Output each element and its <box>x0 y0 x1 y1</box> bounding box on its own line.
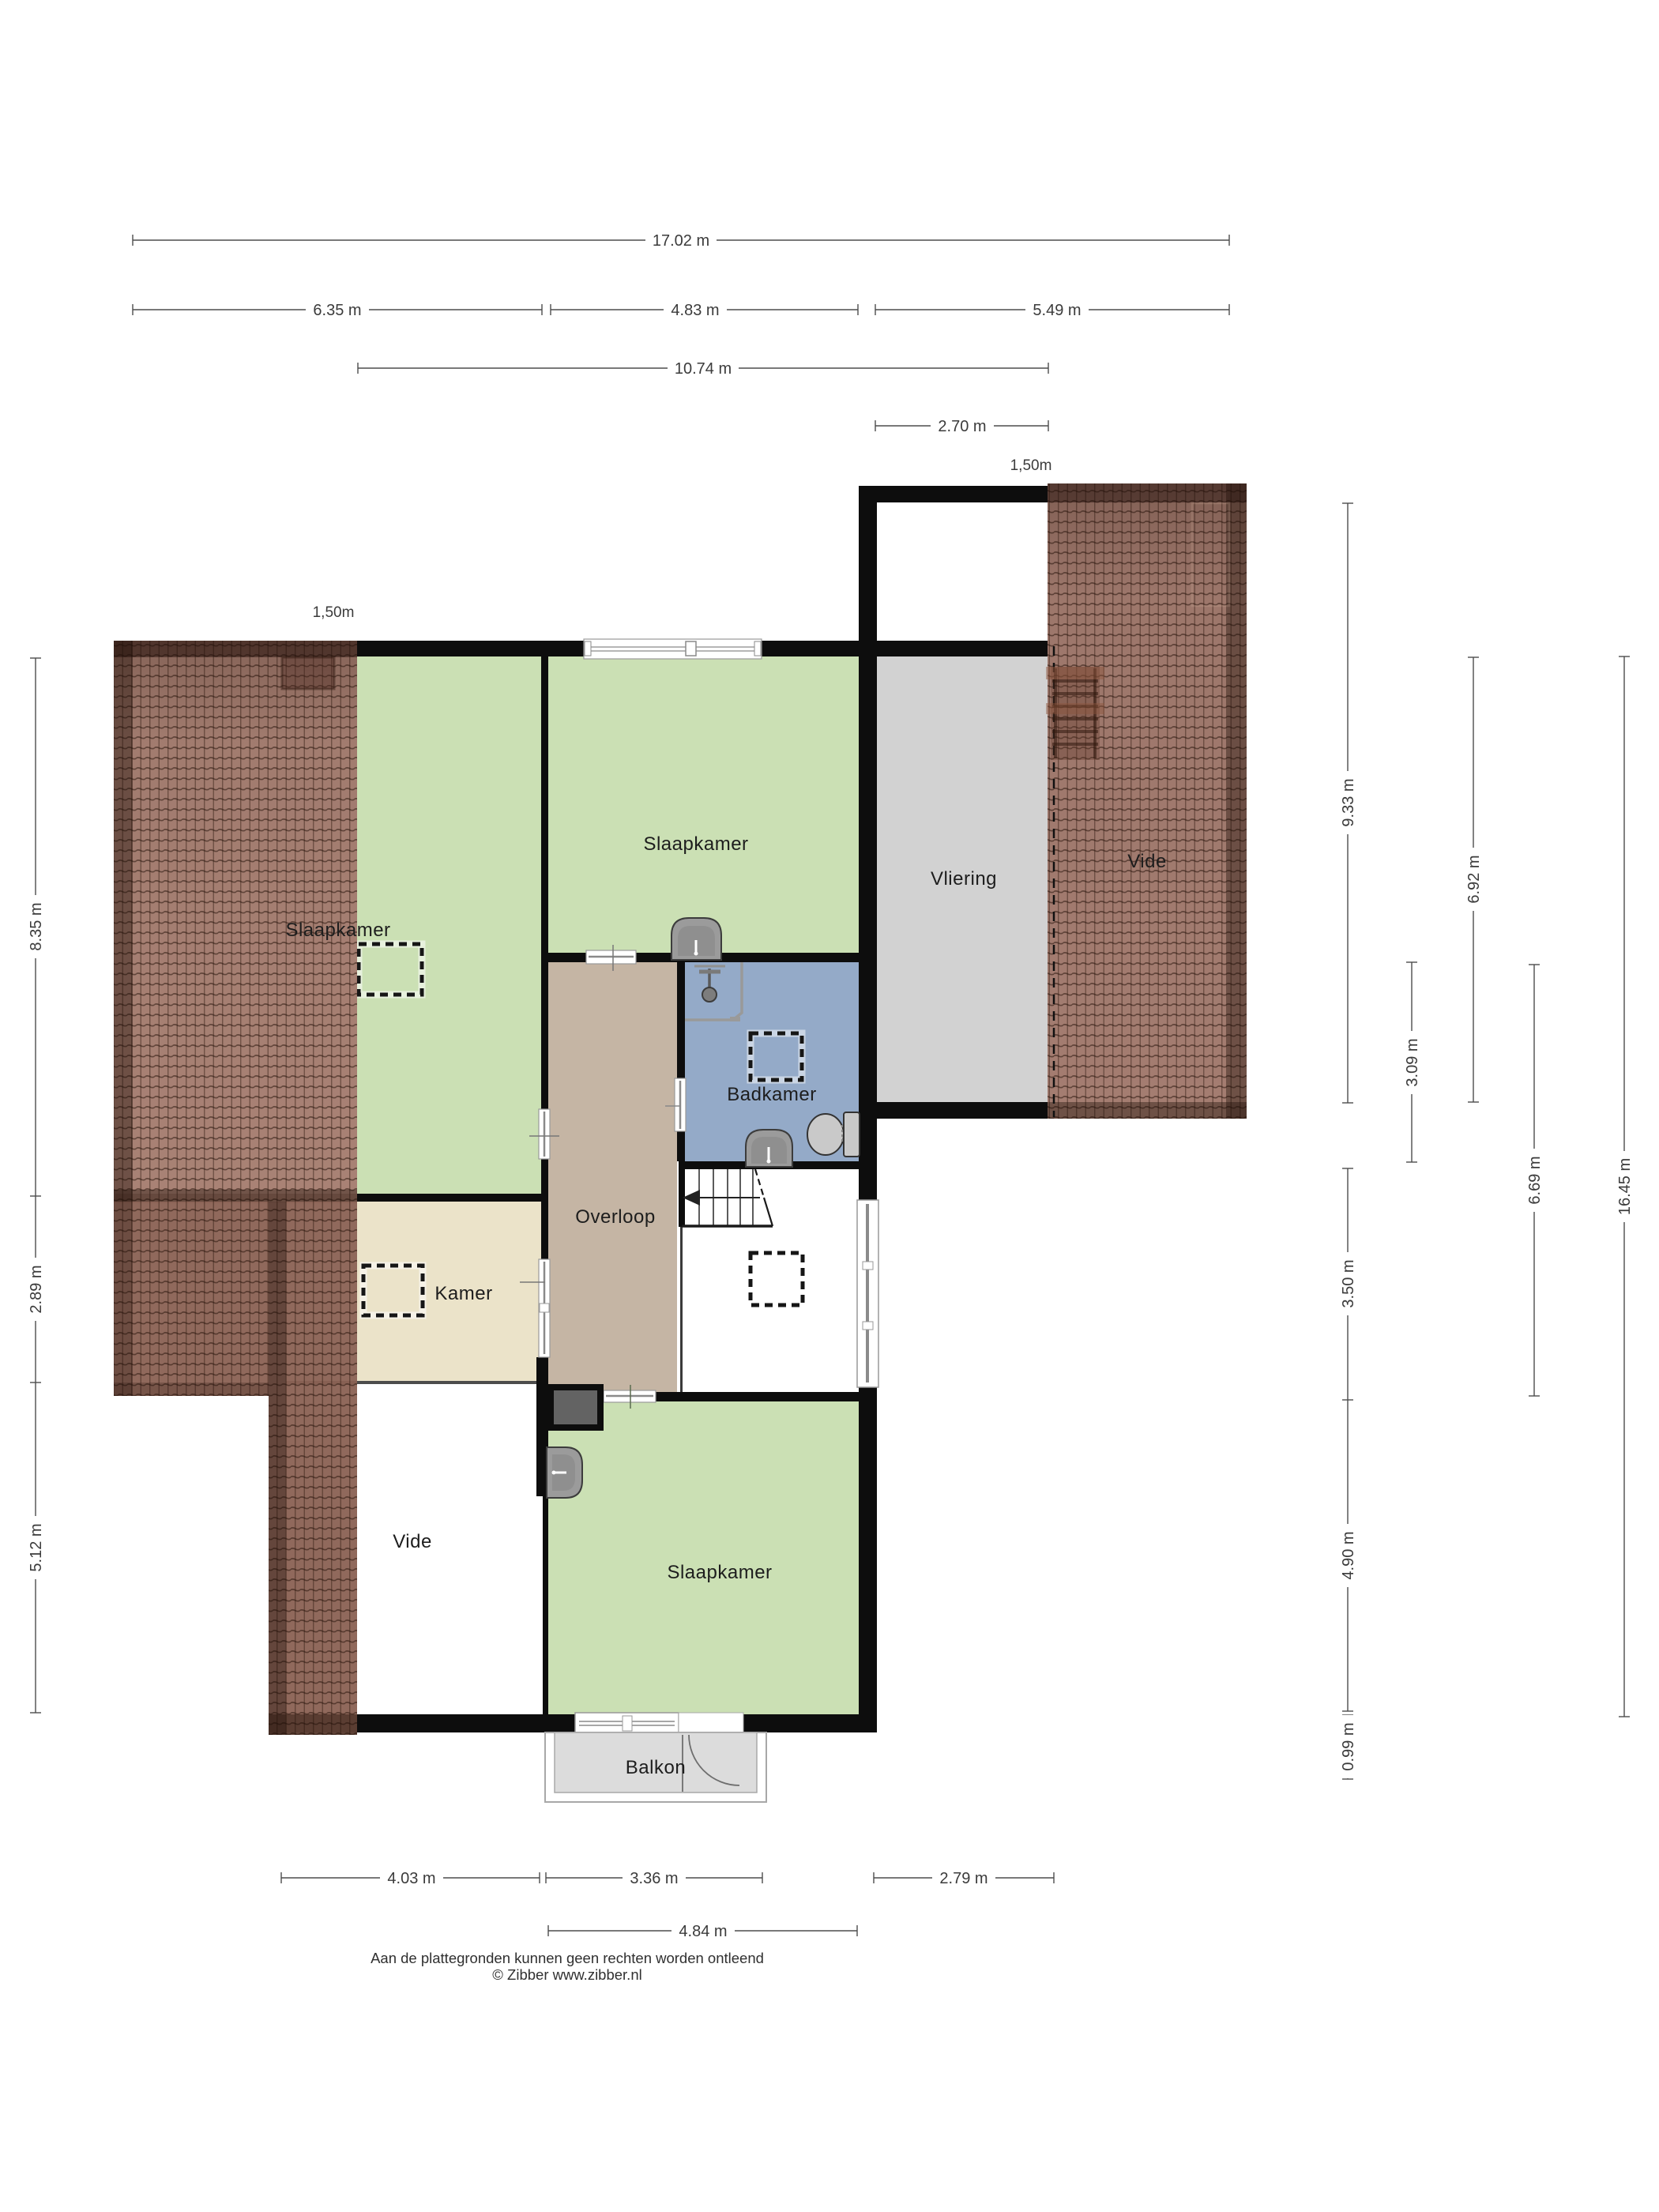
svg-text:2.70 m: 2.70 m <box>938 418 986 435</box>
svg-text:3.09 m: 3.09 m <box>1404 1038 1421 1086</box>
svg-text:Balkon: Balkon <box>626 1757 686 1778</box>
svg-text:10.74 m: 10.74 m <box>675 360 732 378</box>
svg-text:© Zibber www.zibber.nl: © Zibber www.zibber.nl <box>492 1966 641 1983</box>
svg-text:16.45 m: 16.45 m <box>1616 1158 1634 1215</box>
svg-text:Slaapkamer: Slaapkamer <box>667 1562 772 1583</box>
svg-text:17.02 m: 17.02 m <box>653 232 709 250</box>
svg-text:2.79 m: 2.79 m <box>939 1870 987 1887</box>
svg-text:5.12 m: 5.12 m <box>28 1523 45 1571</box>
svg-text:Slaapkamer: Slaapkamer <box>285 920 390 941</box>
svg-text:5.49 m: 5.49 m <box>1033 302 1081 319</box>
svg-text:Vliering: Vliering <box>931 868 997 890</box>
svg-text:6.69 m: 6.69 m <box>1526 1156 1544 1204</box>
svg-text:4.83 m: 4.83 m <box>671 302 719 319</box>
svg-text:4.03 m: 4.03 m <box>387 1870 435 1887</box>
svg-text:Vide: Vide <box>1127 851 1167 872</box>
svg-text:Overloop: Overloop <box>575 1206 655 1228</box>
svg-text:3.50 m: 3.50 m <box>1340 1259 1357 1307</box>
svg-text:6.92 m: 6.92 m <box>1465 855 1483 903</box>
svg-text:6.35 m: 6.35 m <box>313 302 361 319</box>
svg-text:4.84 m: 4.84 m <box>679 1923 727 1940</box>
svg-text:4.90 m: 4.90 m <box>1340 1531 1357 1579</box>
svg-text:3.36 m: 3.36 m <box>630 1870 678 1887</box>
svg-text:2.89 m: 2.89 m <box>28 1265 45 1313</box>
svg-text:9.33 m: 9.33 m <box>1340 778 1357 826</box>
svg-text:Vide: Vide <box>393 1531 432 1552</box>
svg-text:Badkamer: Badkamer <box>727 1084 816 1105</box>
svg-text:Slaapkamer: Slaapkamer <box>643 833 748 855</box>
svg-text:8.35 m: 8.35 m <box>28 902 45 950</box>
svg-text:Kamer: Kamer <box>434 1283 492 1304</box>
svg-text:1,50m: 1,50m <box>313 604 355 621</box>
svg-text:Aan de plattegronden kunnen ge: Aan de plattegronden kunnen geen rechten… <box>371 1950 764 1966</box>
svg-text:0.99 m: 0.99 m <box>1340 1722 1357 1770</box>
svg-text:1,50m: 1,50m <box>1010 457 1052 474</box>
